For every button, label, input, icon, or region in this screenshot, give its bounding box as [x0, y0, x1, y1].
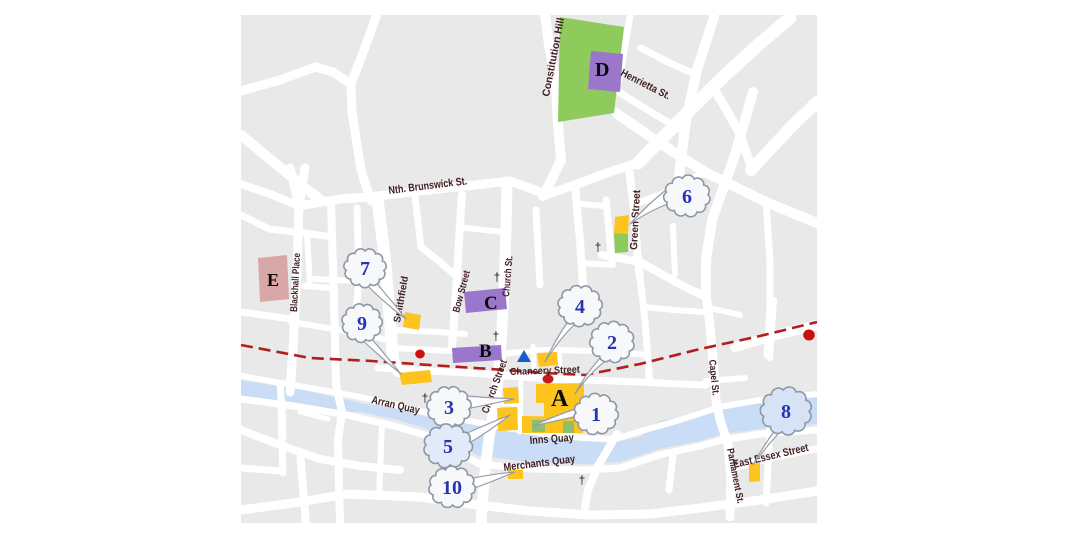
svg-text:D: D	[595, 59, 609, 81]
svg-text:6: 6	[682, 186, 692, 208]
svg-text:3: 3	[444, 397, 454, 419]
svg-text:4: 4	[575, 296, 585, 318]
svg-text:1: 1	[591, 404, 601, 426]
svg-text:7: 7	[360, 258, 370, 280]
svg-text:10: 10	[442, 477, 462, 499]
svg-text:A: A	[551, 386, 569, 412]
svg-text:9: 9	[357, 313, 367, 335]
svg-text:B: B	[479, 341, 492, 362]
svg-text:†: †	[493, 329, 500, 343]
svg-text:2: 2	[607, 332, 617, 354]
svg-text:5: 5	[443, 436, 453, 458]
svg-text:E: E	[267, 270, 279, 290]
svg-text:C: C	[484, 293, 498, 314]
svg-text:†: †	[595, 240, 602, 254]
svg-text:†: †	[494, 270, 501, 284]
svg-text:8: 8	[781, 401, 791, 423]
svg-text:†: †	[579, 473, 586, 487]
